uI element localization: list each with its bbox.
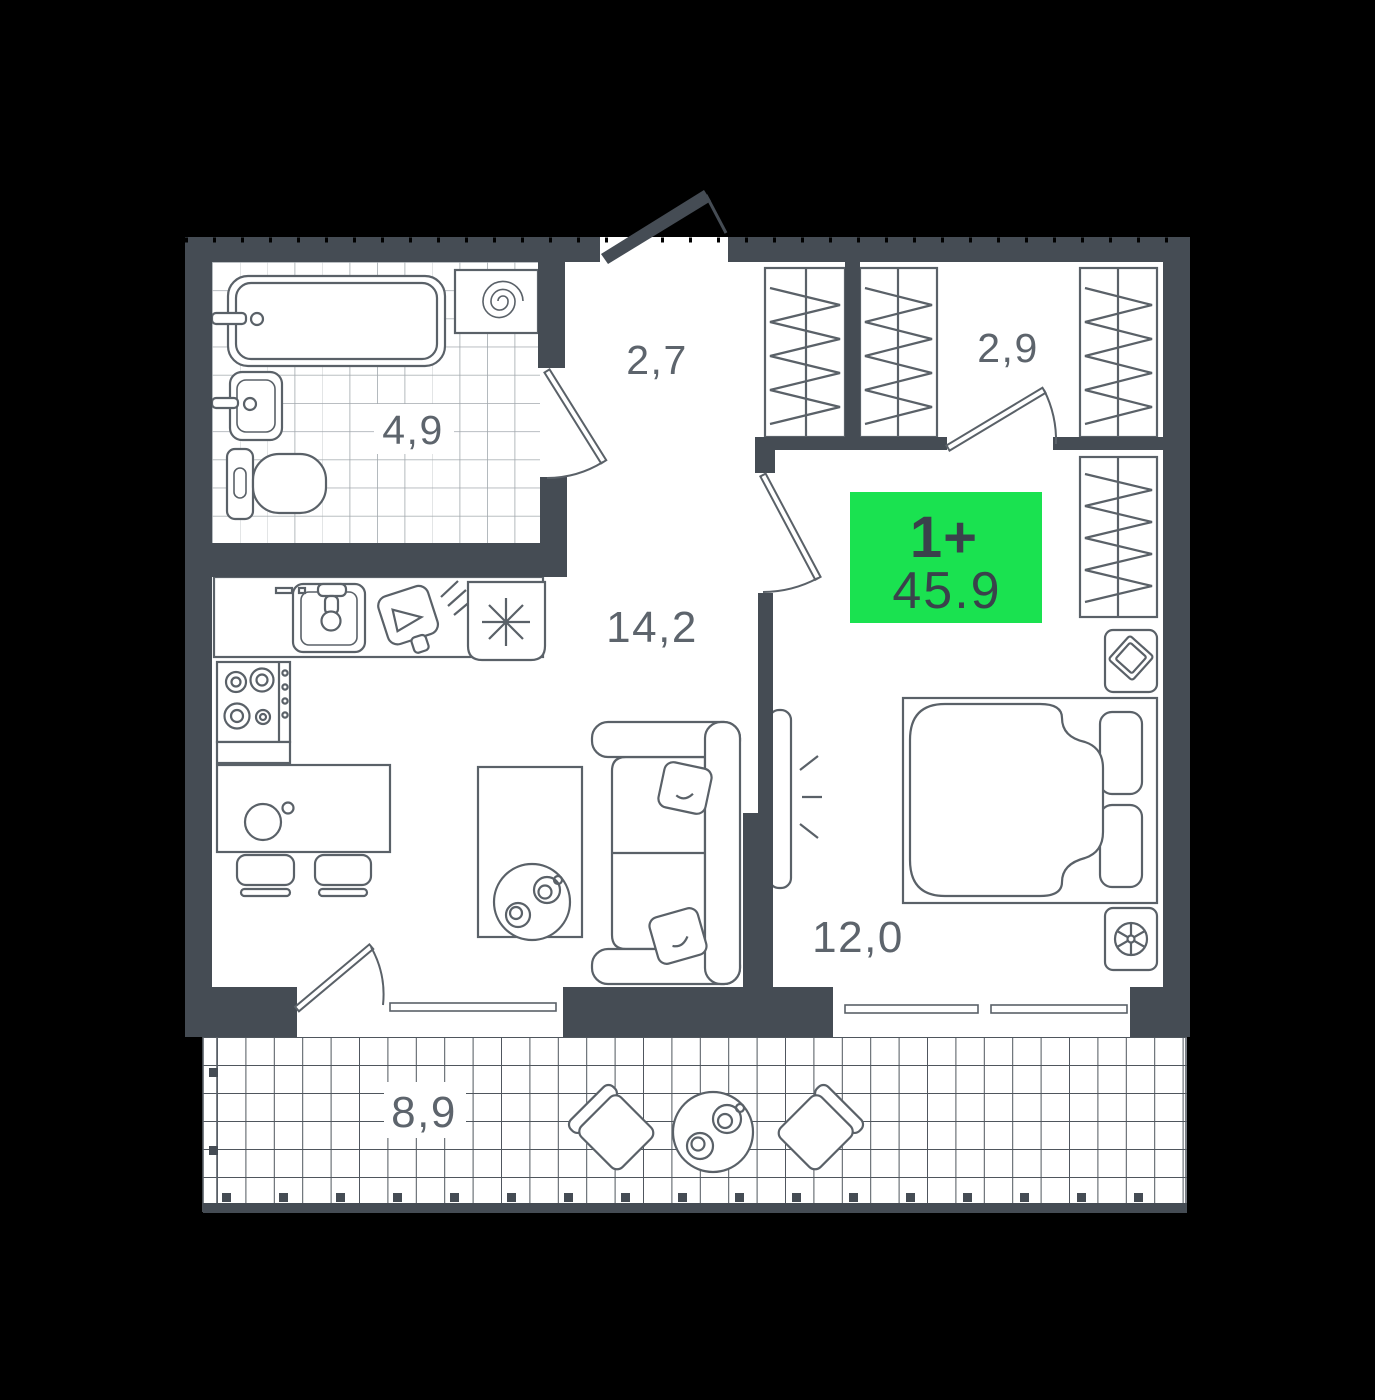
snowflake-icon [482, 598, 530, 646]
toilet [227, 449, 326, 519]
bed-pillow [1100, 805, 1142, 887]
apartment-badge: 1+ 45.9 [850, 492, 1042, 623]
bed-pillow [1100, 712, 1142, 794]
stove [217, 662, 290, 763]
washing-machine [455, 270, 538, 333]
balcony-table [673, 1092, 753, 1172]
chair [237, 855, 294, 885]
bathtub [212, 276, 445, 366]
balcony [203, 1037, 1187, 1213]
nightstand [1105, 630, 1157, 692]
sofa-pillow [657, 761, 714, 816]
wardrobe-area-label: 2,9 [977, 325, 1039, 371]
bathroom-area-label: 4,9 [382, 407, 444, 453]
chair-backrest [319, 889, 367, 896]
nightstand [1105, 908, 1157, 970]
kitchen-living-area-label: 14,2 [606, 603, 698, 652]
fridge [468, 582, 545, 660]
sofa [592, 722, 740, 984]
bedroom-area-label: 12,0 [812, 913, 904, 962]
bathroom [212, 262, 540, 545]
floor-plan: 4,9 2,7 2,9 14,2 12,0 8,9 1+ 45.9 [0, 0, 1375, 1400]
badge-total-area: 45.9 [892, 562, 1001, 620]
badge-type-label: 1+ [910, 505, 978, 570]
chair [315, 855, 371, 885]
coffee-table [478, 767, 582, 940]
chair-backrest [241, 889, 290, 896]
hallway-area-label: 2,7 [626, 337, 688, 383]
balcony-area-label: 8,9 [391, 1088, 457, 1137]
balcony-railing [203, 1203, 1187, 1213]
